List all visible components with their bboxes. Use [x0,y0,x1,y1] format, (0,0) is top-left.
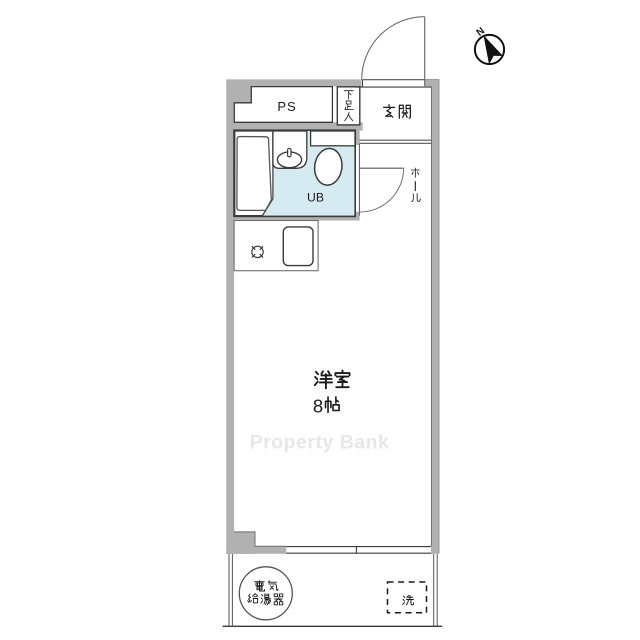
svg-text:8: 8 [313,395,323,416]
svg-text:Property Bank: Property Bank [250,431,390,453]
svg-text:N: N [475,26,487,39]
svg-text:UB: UB [307,191,324,205]
svg-text:PS: PS [277,99,296,114]
